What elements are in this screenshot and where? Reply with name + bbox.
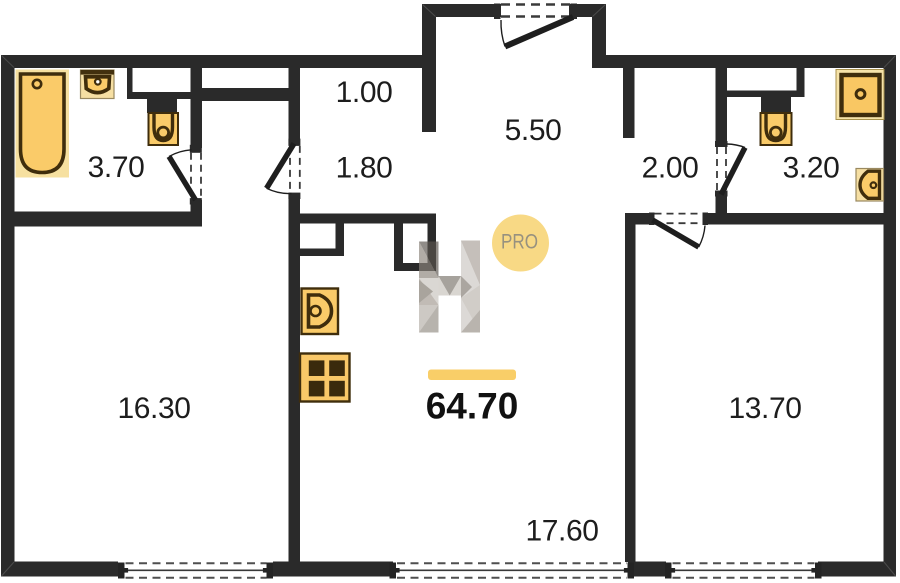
svg-text:3.20: 3.20 bbox=[783, 152, 840, 185]
svg-text:13.70: 13.70 bbox=[728, 392, 801, 425]
svg-text:2.00: 2.00 bbox=[642, 152, 699, 185]
svg-text:16.30: 16.30 bbox=[117, 392, 190, 425]
svg-text:3.70: 3.70 bbox=[88, 151, 145, 184]
svg-text:PRO: PRO bbox=[501, 231, 538, 254]
svg-text:1.00: 1.00 bbox=[336, 76, 393, 109]
svg-text:5.50: 5.50 bbox=[505, 114, 562, 147]
svg-text:17.60: 17.60 bbox=[525, 515, 598, 548]
svg-text:1.80: 1.80 bbox=[336, 152, 393, 185]
svg-text:64.70: 64.70 bbox=[426, 386, 519, 427]
